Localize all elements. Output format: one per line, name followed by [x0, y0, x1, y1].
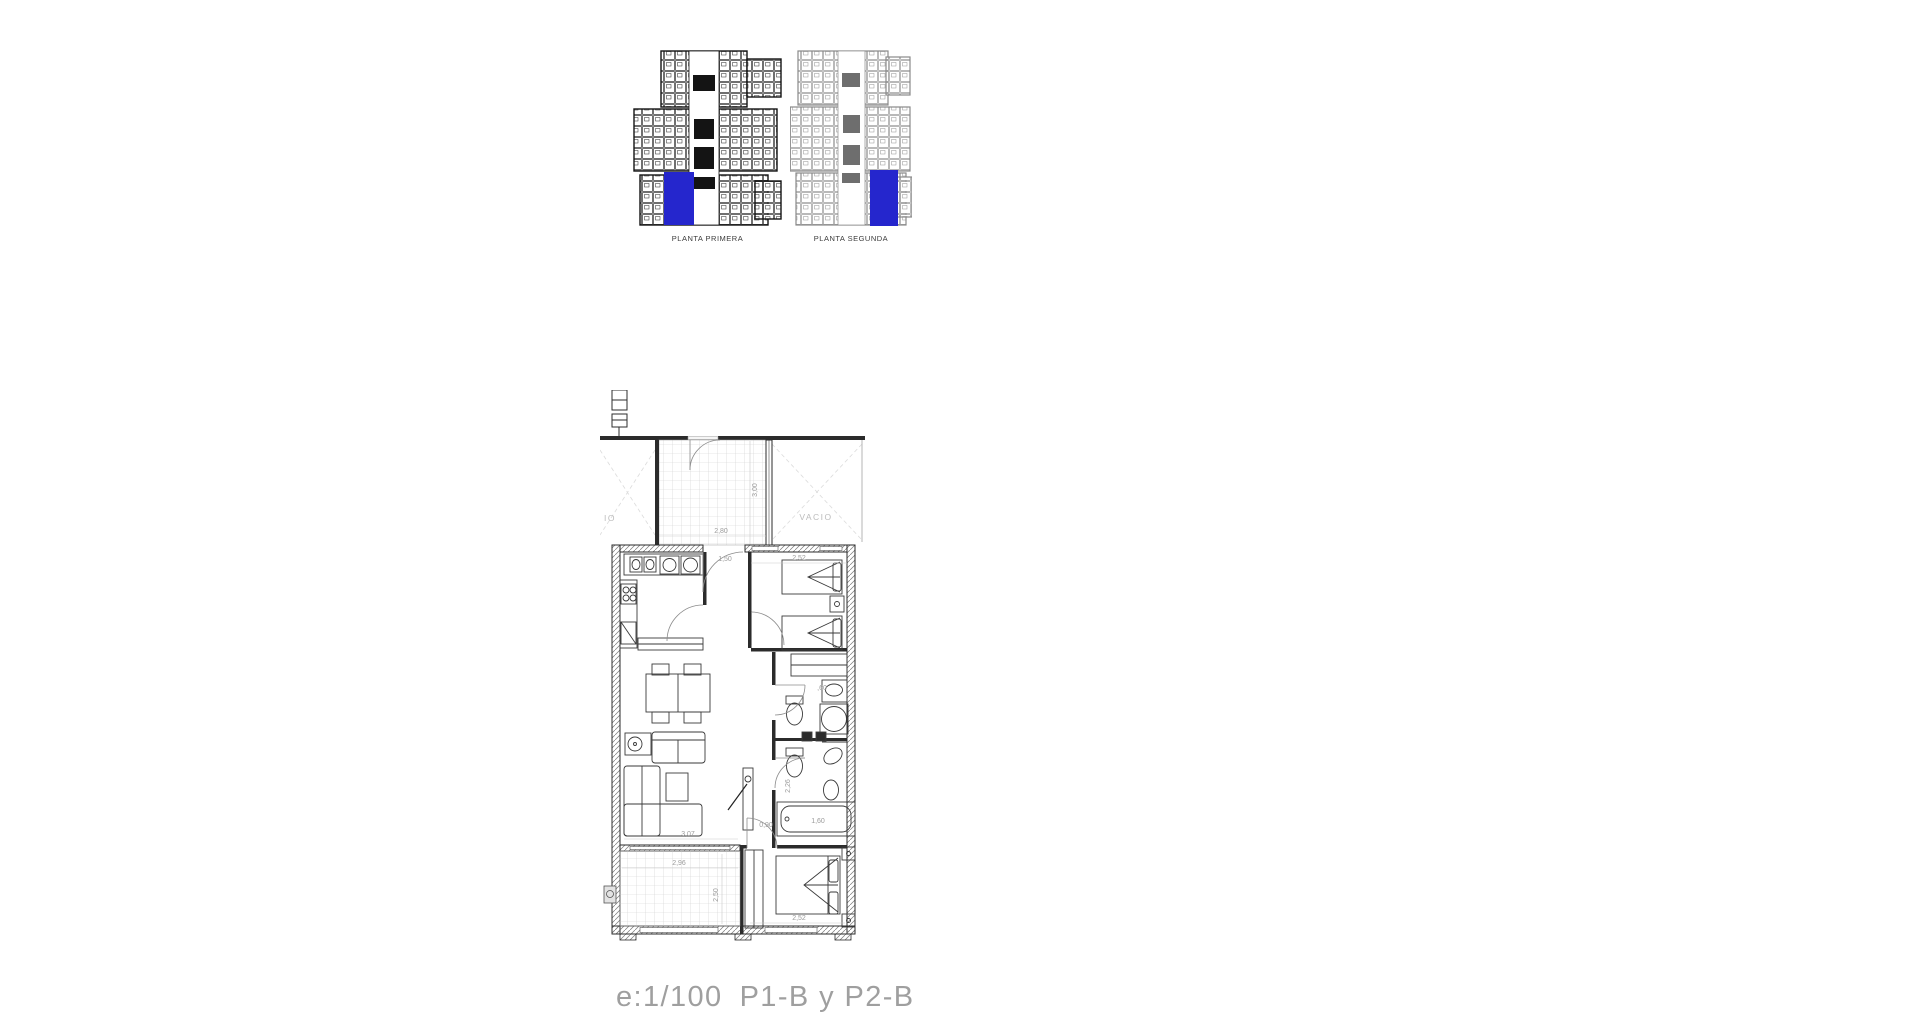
bathroom-1	[775, 680, 848, 734]
planta-primera-plan	[631, 49, 784, 227]
dim-patio-depth: 3,00	[752, 483, 759, 497]
highlighted-unit	[664, 172, 694, 225]
caption-scale: e:1/100	[616, 981, 723, 1013]
planta-primera-label: PLANTA PRIMERA	[631, 234, 784, 243]
apartment-floorplan: IO VACIO	[600, 390, 865, 950]
dim-bedroom2-width: 2,52	[792, 555, 806, 562]
tv-unit	[728, 768, 753, 830]
outdoor-unit	[604, 886, 616, 903]
bedroom-2	[751, 560, 847, 676]
kitchen	[620, 554, 703, 650]
caption: e:1/100P1-B y P2-B	[616, 981, 915, 1014]
top-wall	[600, 436, 865, 440]
planta-segunda-label: PLANTA SEGUNDA	[790, 234, 912, 243]
void-right-label: VACIO	[799, 512, 832, 522]
window	[765, 928, 817, 933]
dim-bath-depth: 2,26	[785, 779, 792, 793]
dim-entry-width: 1,50	[718, 556, 732, 563]
dim-living-width: 3,07	[681, 831, 695, 838]
dim-terrace-width: 2,96	[672, 860, 686, 867]
caption-plans: P1-B y P2-B	[740, 981, 915, 1013]
void-left: IO	[600, 450, 655, 535]
stairwell-fragment	[612, 390, 627, 436]
planta-segunda-plan	[790, 49, 912, 227]
void-left-label: IO	[604, 513, 616, 523]
window	[820, 547, 842, 551]
dim-bathtub-length: 1,60	[811, 818, 825, 825]
dim-hall-width: 0,90	[759, 822, 773, 829]
window	[752, 547, 778, 551]
dim-bedroom1-width: 2,52	[792, 915, 806, 922]
window	[630, 847, 730, 850]
dim-wardrobe-depth: ,60	[817, 685, 827, 692]
dim-terrace-depth: 2,50	[713, 888, 720, 902]
void-right: VACIO	[772, 440, 862, 542]
living-dining	[624, 664, 738, 839]
highlighted-unit	[870, 170, 898, 226]
dim-patio-width: 2,80	[714, 528, 728, 535]
floorplan-page: { "colors": { "highlight": "#2526cd" }, …	[0, 0, 1920, 1024]
bedroom-1	[745, 818, 855, 928]
window	[640, 928, 718, 933]
